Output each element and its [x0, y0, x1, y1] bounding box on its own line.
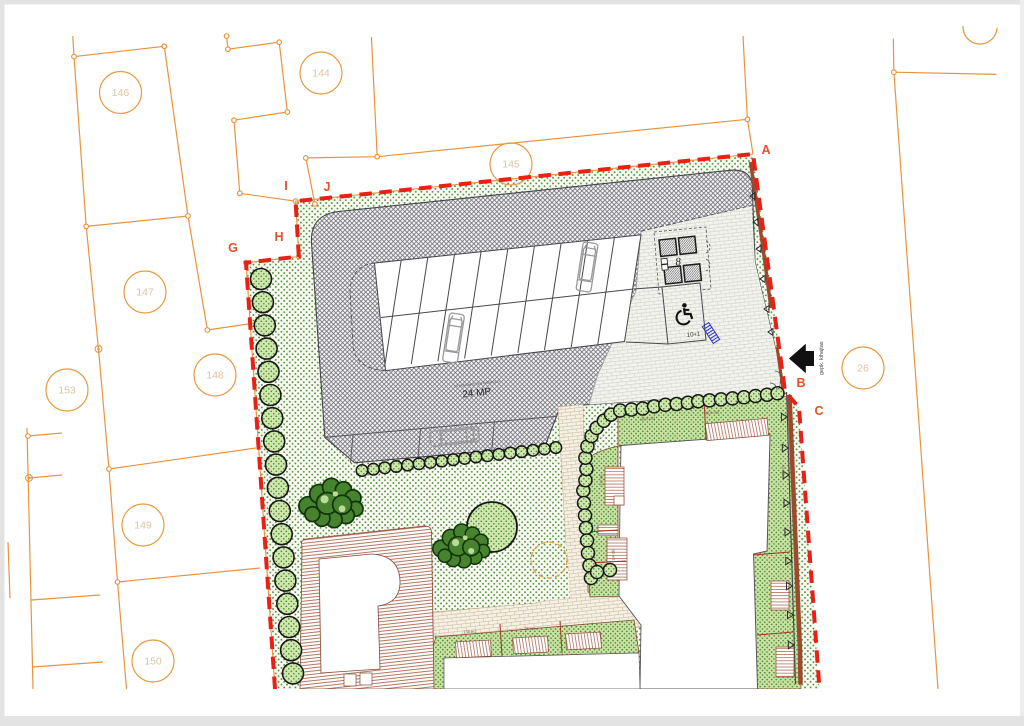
svg-text:150: 150 [144, 656, 162, 668]
svg-text:138 m2: 138 m2 [463, 629, 477, 635]
svg-text:H: H [274, 230, 283, 244]
svg-text:145: 145 [502, 159, 520, 171]
svg-text:146: 146 [112, 87, 130, 99]
svg-text:J: J [324, 180, 331, 194]
svg-text:C: C [814, 404, 823, 418]
svg-text:B: B [796, 376, 805, 390]
svg-text:I: I [284, 179, 287, 193]
svg-text:A: A [761, 143, 770, 157]
svg-text:36 m2: 36 m2 [524, 626, 536, 632]
svg-text:gepk. kihajtas: gepk. kihajtas [819, 341, 825, 375]
svg-text:G: G [228, 241, 238, 255]
svg-text:26: 26 [857, 363, 869, 375]
svg-text:153: 153 [58, 385, 76, 397]
svg-text:147: 147 [136, 287, 154, 299]
svg-text:149: 149 [134, 520, 152, 532]
svg-text:38 m2: 38 m2 [611, 549, 617, 561]
svg-text:38 m2: 38 m2 [599, 474, 605, 486]
svg-text:40 m2: 40 m2 [781, 464, 787, 476]
svg-text:148: 148 [206, 370, 224, 382]
svg-text:144: 144 [312, 68, 330, 80]
